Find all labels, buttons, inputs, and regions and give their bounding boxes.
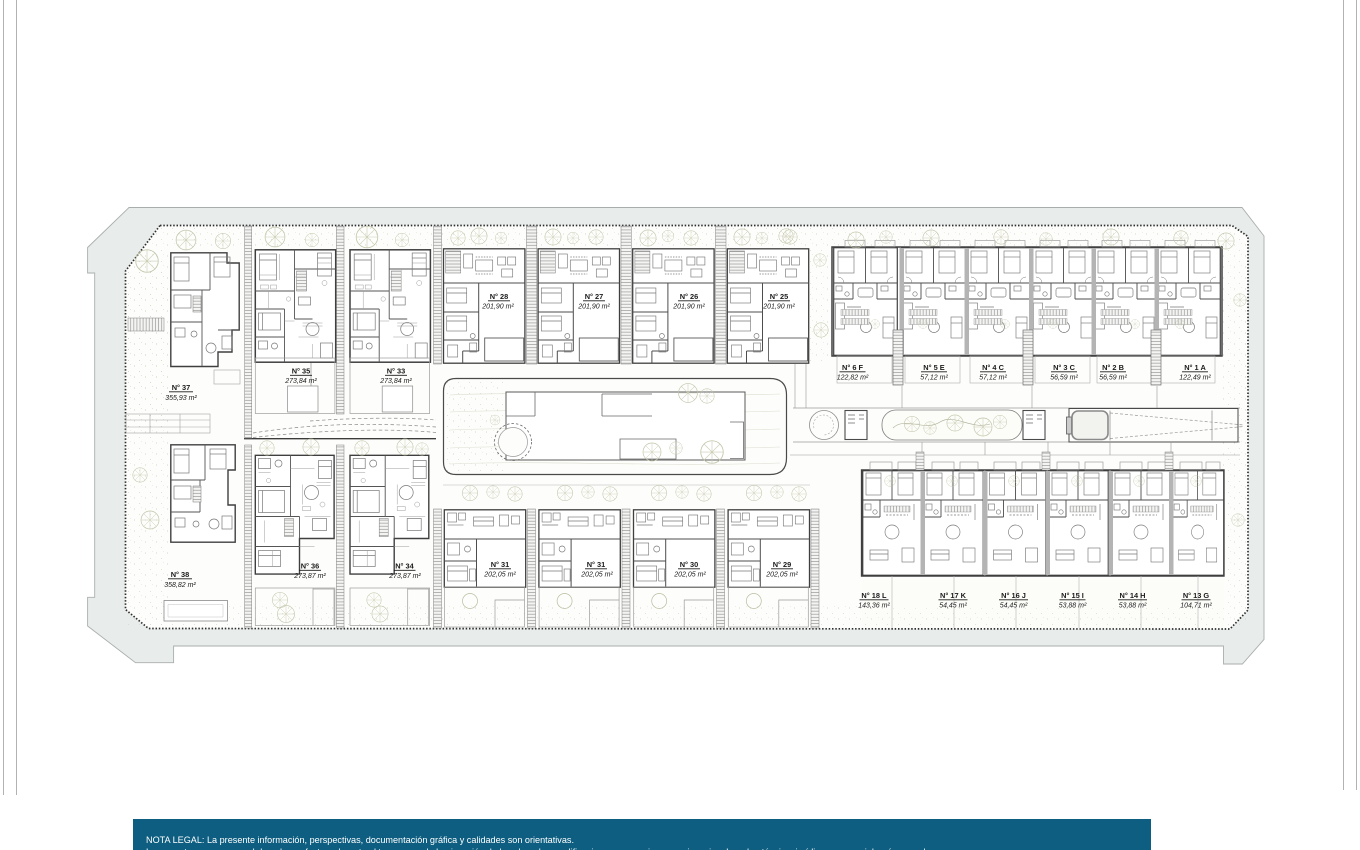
svg-text:N° 35: N° 35 <box>292 367 311 376</box>
svg-text:201,90 m²: 201,90 m² <box>672 304 705 311</box>
svg-text:358,82 m²: 358,82 m² <box>164 582 196 589</box>
svg-text:N° 38: N° 38 <box>171 570 190 579</box>
svg-text:273,84 m²: 273,84 m² <box>379 378 412 385</box>
svg-text:56,59 m²: 56,59 m² <box>1099 375 1127 382</box>
svg-text:104,71 m²: 104,71 m² <box>1180 603 1212 610</box>
svg-text:202,05 m²: 202,05 m² <box>483 572 516 579</box>
svg-text:N° 6 F: N° 6 F <box>842 363 864 372</box>
svg-text:N° 29: N° 29 <box>773 560 792 569</box>
svg-text:N° 33: N° 33 <box>387 367 406 376</box>
svg-text:122,49 m²: 122,49 m² <box>1179 375 1211 382</box>
svg-text:53,88 m²: 53,88 m² <box>1059 603 1087 610</box>
svg-text:N° 3 C: N° 3 C <box>1053 363 1076 372</box>
svg-text:N° 4 C: N° 4 C <box>982 363 1005 372</box>
svg-text:N° 2 B: N° 2 B <box>1102 363 1124 372</box>
svg-text:56,59 m²: 56,59 m² <box>1050 375 1078 382</box>
svg-text:201,90 m²: 201,90 m² <box>762 304 795 311</box>
svg-text:N° 34: N° 34 <box>395 562 414 571</box>
svg-text:54,45 m²: 54,45 m² <box>939 603 967 610</box>
svg-text:N° 13 G: N° 13 G <box>1183 591 1210 600</box>
svg-text:54,45 m²: 54,45 m² <box>1000 603 1028 610</box>
svg-text:N° 31: N° 31 <box>491 560 510 569</box>
svg-text:273,87 m²: 273,87 m² <box>293 573 326 580</box>
svg-text:57,12 m²: 57,12 m² <box>979 375 1007 382</box>
svg-text:202,05 m²: 202,05 m² <box>673 572 706 579</box>
svg-text:N° 36: N° 36 <box>301 562 320 571</box>
svg-text:N° 16 J: N° 16 J <box>1001 591 1026 600</box>
svg-text:N° 15 I: N° 15 I <box>1061 591 1084 600</box>
svg-text:N° 18 L: N° 18 L <box>861 591 887 600</box>
svg-text:N° 25: N° 25 <box>770 292 789 301</box>
svg-text:N° 30: N° 30 <box>680 560 699 569</box>
svg-text:273,84 m²: 273,84 m² <box>284 378 317 385</box>
svg-text:N° 31: N° 31 <box>587 560 606 569</box>
svg-text:N° 27: N° 27 <box>585 292 604 301</box>
svg-text:N° 26: N° 26 <box>680 292 699 301</box>
svg-text:NOTA LEGAL: La presente inform: NOTA LEGAL: La presente información, per… <box>146 835 574 845</box>
svg-text:N° 28: N° 28 <box>490 292 509 301</box>
svg-text:N° 14 H: N° 14 H <box>1120 591 1146 600</box>
svg-text:273,87 m²: 273,87 m² <box>388 573 421 580</box>
svg-text:201,90 m²: 201,90 m² <box>577 304 610 311</box>
svg-text:N° 5 E: N° 5 E <box>923 363 945 372</box>
svg-text:53,88 m²: 53,88 m² <box>1119 603 1147 610</box>
svg-text:N° 17 K: N° 17 K <box>940 591 967 600</box>
svg-text:201,90 m²: 201,90 m² <box>481 304 514 311</box>
svg-text:122,82 m²: 122,82 m² <box>837 375 869 382</box>
svg-text:202,05 m²: 202,05 m² <box>580 572 613 579</box>
svg-text:N° 1 A: N° 1 A <box>1184 363 1206 372</box>
svg-text:143,36 m²: 143,36 m² <box>858 603 890 610</box>
svg-text:57,12 m²: 57,12 m² <box>920 375 948 382</box>
svg-text:355,93 m²: 355,93 m² <box>165 395 197 402</box>
svg-text:N° 37: N° 37 <box>172 383 191 392</box>
svg-text:202,05 m²: 202,05 m² <box>765 572 798 579</box>
